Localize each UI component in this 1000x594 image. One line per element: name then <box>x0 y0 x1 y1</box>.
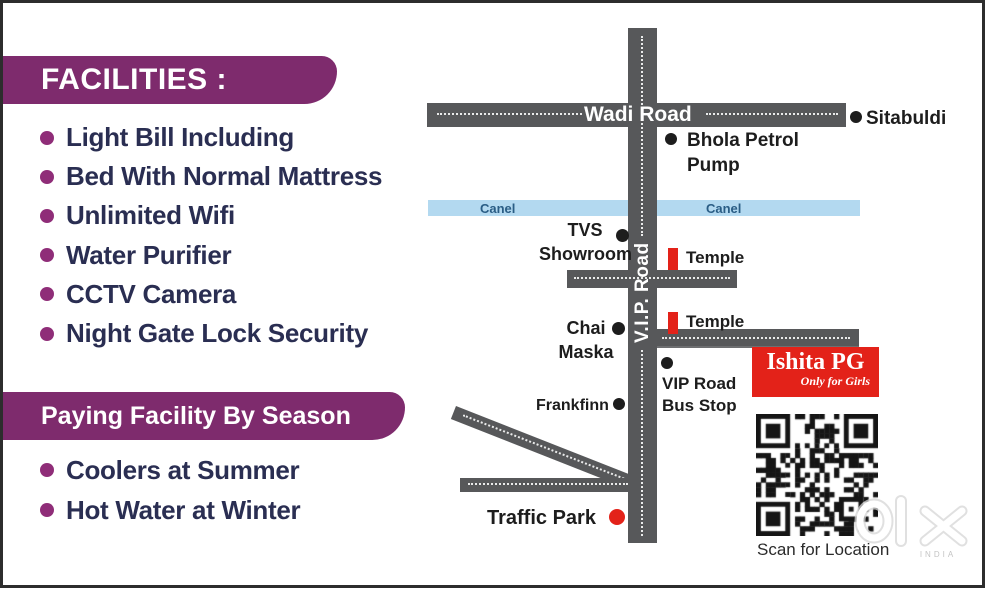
sitabuldi-label: Sitabuldi <box>866 106 946 131</box>
olx-watermark-icon: INDIA <box>852 494 977 564</box>
bullet-icon <box>40 170 54 184</box>
temple-icon <box>668 248 678 270</box>
facility-label: Bed With Normal Mattress <box>66 161 382 192</box>
temple-label: Temple <box>686 311 744 333</box>
list-item: Light Bill Including <box>40 118 382 157</box>
bus-stop-label: VIP Road Bus Stop <box>662 373 748 418</box>
lower-road <box>460 478 637 492</box>
temple-label: Temple <box>686 247 744 269</box>
bhola-label: Bhola Petrol Pump <box>687 128 819 178</box>
bullet-icon <box>40 463 54 477</box>
tvs-label: TVS Showroom <box>539 219 631 267</box>
bullet-icon <box>40 131 54 145</box>
bus-stop-dot <box>661 357 673 369</box>
bullet-icon <box>40 209 54 223</box>
facility-label: CCTV Camera <box>66 279 236 310</box>
chai-maska-label: Chai Maska <box>553 317 619 365</box>
road-dash <box>706 113 838 115</box>
bullet-icon <box>40 287 54 301</box>
road-dash <box>641 350 643 536</box>
ishita-pg-title: Ishita PG <box>752 349 879 376</box>
canal-label: Canel <box>480 201 515 216</box>
season-list: Coolers at Summer Hot Water at Winter <box>40 450 300 530</box>
road-dash <box>437 113 582 115</box>
frankfinn-dot <box>613 398 625 410</box>
olx-region-label: INDIA <box>920 550 956 559</box>
bullet-icon <box>40 248 54 262</box>
season-header: Paying Facility By Season <box>41 402 351 431</box>
wadi-road-label: Wadi Road <box>584 103 692 127</box>
list-item: Coolers at Summer <box>40 450 300 490</box>
road-dash <box>641 36 643 236</box>
ishita-pg-subtitle: Only for Girls <box>752 374 879 389</box>
traffic-park-dot <box>609 509 625 525</box>
temple-icon <box>668 312 678 334</box>
bullet-icon <box>40 503 54 517</box>
road-dash <box>662 337 850 339</box>
list-item: Night Gate Lock Security <box>40 314 382 353</box>
road-dash <box>468 483 628 485</box>
bhola-dot <box>665 133 677 145</box>
pg-flyer: FACILITIES : Light Bill Including Bed Wi… <box>0 0 1000 594</box>
list-item: Unlimited Wifi <box>40 196 382 235</box>
sitabuldi-dot <box>850 111 862 123</box>
facilities-list: Light Bill Including Bed With Normal Mat… <box>40 118 382 353</box>
road-dash <box>463 414 631 482</box>
list-item: Water Purifier <box>40 236 382 275</box>
traffic-park-label: Traffic Park <box>487 505 596 531</box>
season-header-banner: Paying Facility By Season <box>3 392 405 440</box>
bullet-icon <box>40 327 54 341</box>
facilities-header: FACILITIES : <box>41 63 227 97</box>
ishita-pg-badge: Ishita PG Only for Girls <box>752 347 879 397</box>
list-item: Hot Water at Winter <box>40 490 300 530</box>
season-item-label: Hot Water at Winter <box>66 495 300 526</box>
facility-label: Night Gate Lock Security <box>66 318 368 349</box>
season-item-label: Coolers at Summer <box>66 455 299 486</box>
list-item: CCTV Camera <box>40 275 382 314</box>
list-item: Bed With Normal Mattress <box>40 157 382 196</box>
canal-label: Canel <box>706 201 741 216</box>
facility-label: Water Purifier <box>66 240 231 271</box>
facility-label: Light Bill Including <box>66 122 294 153</box>
frankfinn-label: Frankfinn <box>536 395 609 416</box>
facility-label: Unlimited Wifi <box>66 200 235 231</box>
facilities-header-banner: FACILITIES : <box>3 56 337 104</box>
